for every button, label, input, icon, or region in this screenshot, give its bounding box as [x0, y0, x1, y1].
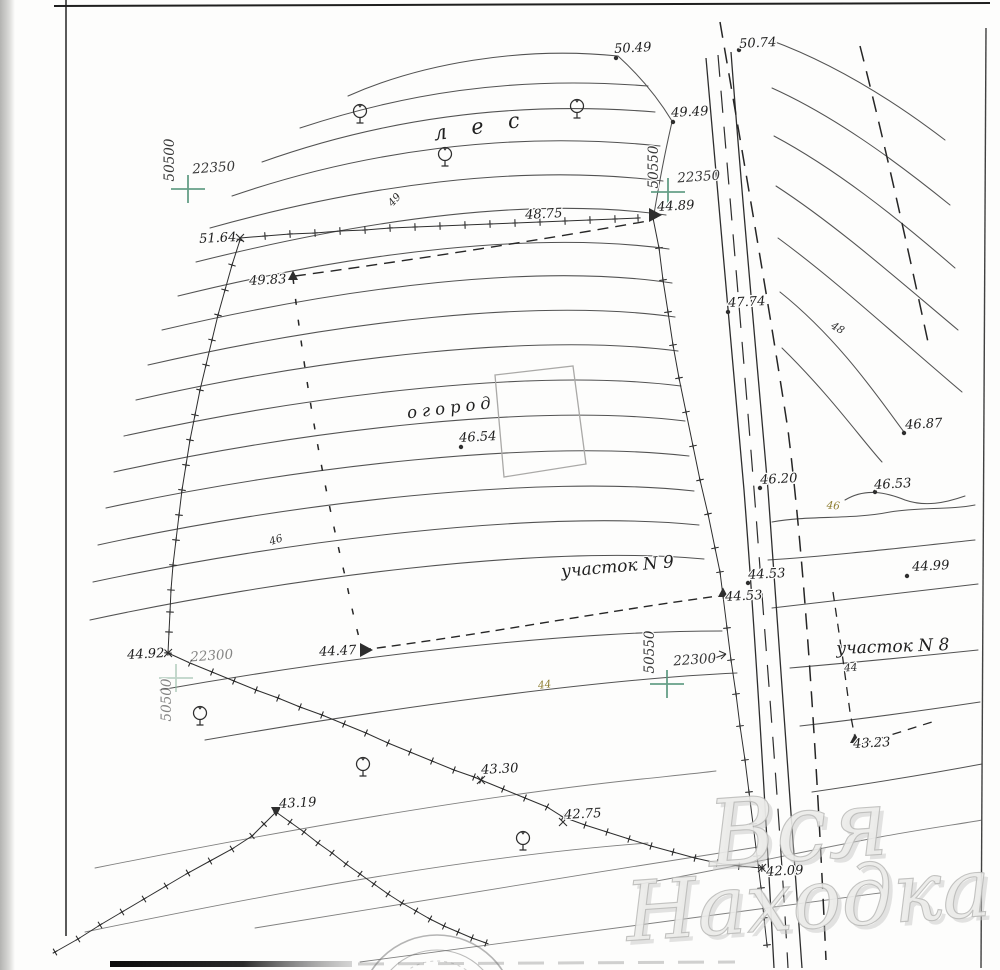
grid-cross: 5055022300 — [642, 630, 717, 698]
elevation-point: 46.54 — [458, 429, 497, 449]
elevation-label: 44.53 — [747, 566, 786, 583]
elevation-label: 44.53 — [724, 588, 763, 605]
boundary-north — [240, 218, 638, 238]
grid-northing-label: 50500 — [159, 678, 175, 721]
elevation-label: 49.49 — [670, 104, 709, 121]
deciduous-tree-icon — [354, 105, 367, 124]
grid-easting-label: 22300 — [672, 651, 717, 670]
elevation-label: 44.47 — [318, 643, 358, 660]
elevation-point: 44.92 — [126, 646, 172, 663]
contour-elevation-label: 44 — [536, 678, 552, 692]
grid-easting-label: 22350 — [191, 159, 236, 178]
scan-edge-shadow — [0, 0, 15, 970]
elevation-point: 43.23 — [850, 734, 891, 753]
elevation-point: 44.47 — [318, 643, 373, 660]
label-plot-8: участок N 8 — [835, 635, 950, 659]
elevation-label: 46.53 — [873, 476, 912, 493]
contour-elevation-labels: 494846464444 — [267, 191, 858, 692]
grid-cross: 5050022350 — [162, 138, 236, 203]
deciduous-tree-icon — [439, 148, 452, 167]
elevation-point: 46.53 — [873, 476, 912, 494]
elevation-label: 48.75 — [524, 206, 563, 223]
watermark: Вся Находка Вся Находка — [620, 769, 998, 965]
elevation-point: 50.74 — [737, 35, 777, 52]
elevation-label: 46.87 — [904, 416, 944, 433]
elevation-label: 43.19 — [278, 795, 317, 812]
contour-lines — [90, 40, 982, 792]
elevation-point: 44.53 — [746, 566, 786, 585]
elevation-label: 44.92 — [126, 646, 165, 663]
contour-elevation-label: 48 — [828, 319, 847, 337]
deciduous-tree-icon — [517, 832, 530, 851]
contour-elevation-label: 46 — [267, 532, 285, 548]
elevation-label: 44.89 — [656, 198, 695, 215]
fence-south — [168, 653, 762, 868]
scan-ink-line-faint — [358, 962, 735, 964]
building-outline — [495, 366, 586, 477]
elevation-dot-marker — [905, 574, 909, 578]
grid-northing-label: 50550 — [642, 630, 658, 673]
elevation-point: 44.99 — [905, 558, 950, 578]
plot-boundaries — [55, 218, 767, 952]
map-canvas: л е с огород участок N 9 участок N 8 505… — [0, 0, 1000, 970]
contour-elevation-label: 49 — [385, 191, 404, 210]
elevation-label: 49.83 — [248, 272, 287, 289]
elevation-point: 47.74 — [726, 294, 766, 314]
elevation-label: 43.23 — [852, 735, 891, 752]
elevation-label: 46.54 — [458, 429, 497, 446]
scanned-survey-plan: л е с огород участок N 9 участок N 8 505… — [0, 0, 1000, 970]
elevation-point: 48.75 — [524, 206, 563, 223]
elevation-label: 51.64 — [199, 230, 237, 247]
grid-easting-label: 22300 — [189, 647, 234, 666]
grid-northing-label: 50500 — [162, 138, 178, 181]
deciduous-tree-icon — [357, 758, 370, 777]
elevation-point: 51.64 — [199, 230, 244, 247]
fence-southwest — [55, 812, 486, 952]
scan-ink-line — [110, 961, 352, 967]
contour-elevation-label: 44 — [843, 662, 858, 675]
elevation-point: 46.87 — [902, 416, 944, 435]
label-plot-9: участок N 9 — [559, 552, 675, 582]
deciduous-tree-icon — [194, 707, 207, 726]
elevation-point: 46.20 — [758, 471, 798, 490]
elevation-label: 42.75 — [563, 806, 602, 823]
elevation-label: 50.74 — [739, 35, 777, 52]
elevation-point: 49.83 — [248, 271, 298, 290]
elevation-label: 43.30 — [480, 761, 519, 778]
elevation-label: 46.20 — [759, 471, 798, 488]
elevation-point: 49.49 — [670, 104, 709, 124]
grid-easting-label: 22350 — [676, 168, 721, 187]
elevation-label: 44.99 — [911, 558, 950, 575]
elevation-label: 47.74 — [727, 294, 766, 311]
grid-northing-label: 50550 — [646, 145, 662, 188]
contour-elevation-label: 46 — [825, 499, 840, 512]
survey-arrow-marker — [360, 643, 373, 657]
boundary-west — [168, 240, 240, 653]
elevation-point: 44.53 — [718, 588, 763, 606]
elevation-label: 50.49 — [614, 40, 652, 57]
elevation-points: 50.4950.7449.4951.6449.8348.7544.8947.74… — [126, 35, 950, 880]
